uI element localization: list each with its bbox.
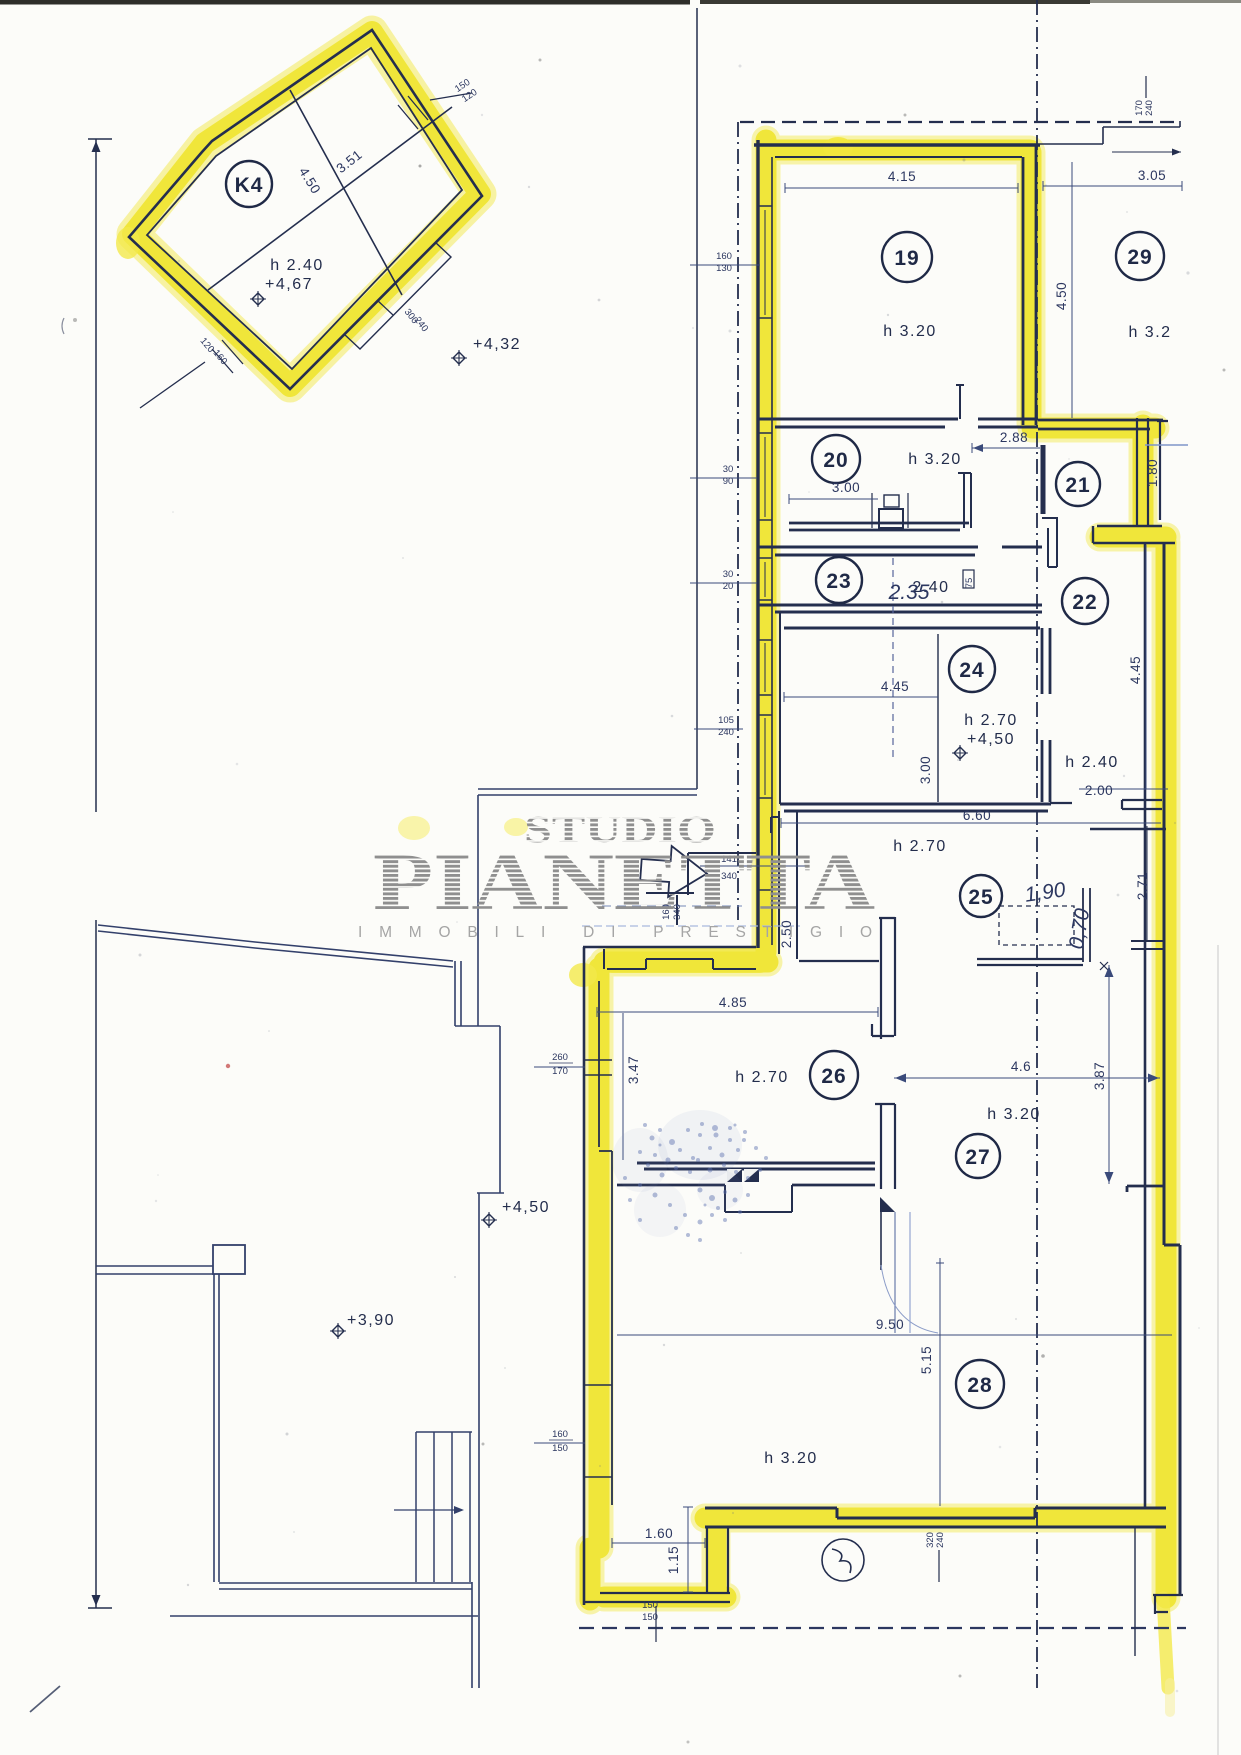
svg-text:h 2.40: h 2.40 [1065, 754, 1118, 771]
svg-text:2.00: 2.00 [1085, 783, 1113, 798]
svg-text:75: 75 [964, 578, 975, 589]
svg-text:6.60: 6.60 [963, 808, 991, 823]
svg-text:150: 150 [642, 1612, 658, 1623]
svg-text:+4,50: +4,50 [502, 1199, 550, 1216]
svg-text:h 2.70: h 2.70 [735, 1069, 788, 1086]
svg-text:20: 20 [823, 449, 848, 472]
svg-text:4.50: 4.50 [1054, 282, 1069, 310]
svg-text:h 3.20: h 3.20 [908, 451, 961, 468]
svg-text:28: 28 [967, 1374, 992, 1397]
svg-text:240: 240 [935, 1532, 946, 1548]
svg-text:90: 90 [723, 476, 734, 487]
svg-text:30: 30 [723, 569, 734, 580]
svg-text:4.15: 4.15 [888, 169, 916, 184]
svg-text:9.50: 9.50 [876, 1317, 904, 1332]
svg-text:h 2.70: h 2.70 [964, 712, 1017, 729]
svg-text:1.15: 1.15 [666, 1546, 681, 1574]
svg-text:27: 27 [965, 1146, 990, 1169]
svg-text:105: 105 [718, 715, 734, 726]
svg-text:20: 20 [723, 581, 734, 592]
svg-text:26: 26 [821, 1065, 846, 1088]
svg-text:4.6: 4.6 [1011, 1059, 1031, 1074]
svg-text:2.35: 2.35 [888, 581, 930, 604]
svg-text:h 2.40: h 2.40 [270, 257, 323, 274]
svg-text:2.88: 2.88 [1000, 430, 1028, 445]
svg-text:22: 22 [1072, 591, 1097, 614]
svg-text:160: 160 [716, 251, 732, 262]
svg-text:h 3.20: h 3.20 [987, 1106, 1040, 1123]
svg-text:4.85: 4.85 [719, 995, 747, 1010]
svg-text:170: 170 [552, 1066, 568, 1077]
svg-text:150: 150 [552, 1443, 568, 1454]
svg-text:21: 21 [1065, 474, 1090, 497]
svg-text:2.71: 2.71 [1135, 872, 1150, 900]
svg-text:24: 24 [959, 659, 984, 682]
svg-text:5.15: 5.15 [919, 1346, 934, 1374]
svg-text:150: 150 [642, 1600, 658, 1611]
svg-text:3.47: 3.47 [626, 1056, 641, 1084]
svg-text:25: 25 [968, 886, 993, 909]
svg-text:240: 240 [718, 727, 734, 738]
svg-text:h 3.20: h 3.20 [764, 1450, 817, 1467]
svg-text:23: 23 [826, 570, 851, 593]
svg-text:+4,67: +4,67 [265, 276, 313, 293]
svg-text:260: 260 [552, 1052, 568, 1063]
svg-text:29: 29 [1127, 246, 1152, 269]
svg-text:K4: K4 [235, 174, 264, 197]
svg-text:PIANETTA: PIANETTA [373, 836, 875, 927]
svg-text:240: 240 [1144, 100, 1155, 116]
svg-text:+3,90: +3,90 [347, 1312, 395, 1329]
svg-text:3.00: 3.00 [918, 756, 933, 784]
svg-text:4.45: 4.45 [881, 679, 909, 694]
svg-text:1.80: 1.80 [1145, 459, 1160, 487]
svg-text:1.60: 1.60 [645, 1526, 673, 1541]
svg-text:3.87: 3.87 [1092, 1062, 1107, 1090]
svg-text:h 3.20: h 3.20 [883, 323, 936, 340]
svg-text:4.45: 4.45 [1128, 656, 1143, 684]
svg-text:h 3.2: h 3.2 [1128, 324, 1171, 341]
svg-text:3.00: 3.00 [832, 480, 860, 495]
svg-text:h 2.70: h 2.70 [893, 838, 946, 855]
svg-text:+4,50: +4,50 [967, 731, 1015, 748]
svg-text:+4,32: +4,32 [473, 336, 521, 353]
svg-text:30: 30 [723, 464, 734, 475]
svg-text:130: 130 [716, 263, 732, 274]
svg-text:3.05: 3.05 [1138, 168, 1166, 183]
svg-text:19: 19 [894, 247, 919, 270]
svg-text:160: 160 [552, 1429, 568, 1440]
